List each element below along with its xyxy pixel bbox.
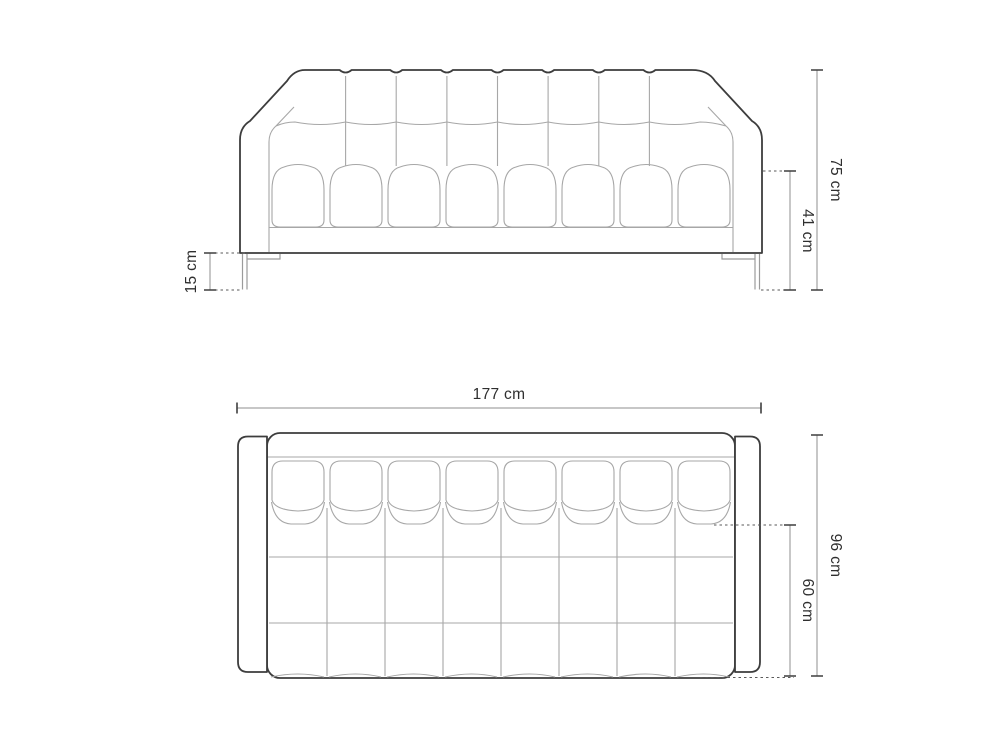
dim-overall-depth: 96 cm [811,435,844,676]
diagram-svg: 75 cm 41 cm 15 cm [0,0,1000,750]
top-right-arm [735,437,760,673]
front-left-leg [243,254,281,290]
front-right-leg [722,254,760,290]
dim-label-overall-depth: 96 cm [827,534,844,578]
dim-label-overall-width: 177 cm [473,386,526,403]
sofa-dimension-diagram: 75 cm 41 cm 15 cm [0,0,1000,750]
dim-label-seat-depth: 60 cm [799,579,816,623]
dim-label-leg-height: 15 cm [183,250,200,294]
dim-seat-height: 41 cm [761,171,816,290]
dim-overall-width: 177 cm [237,386,761,414]
top-left-arm [238,437,267,673]
front-view: 75 cm 41 cm 15 cm [183,70,844,293]
front-sofa-outline [240,70,762,253]
dim-overall-height: 75 cm [811,70,844,290]
top-view: 177 cm 96 cm 60 cm [237,386,844,678]
dim-label-seat-height: 41 cm [799,209,816,253]
dim-label-overall-height: 75 cm [827,158,844,202]
dim-leg-height: 15 cm [183,250,247,294]
